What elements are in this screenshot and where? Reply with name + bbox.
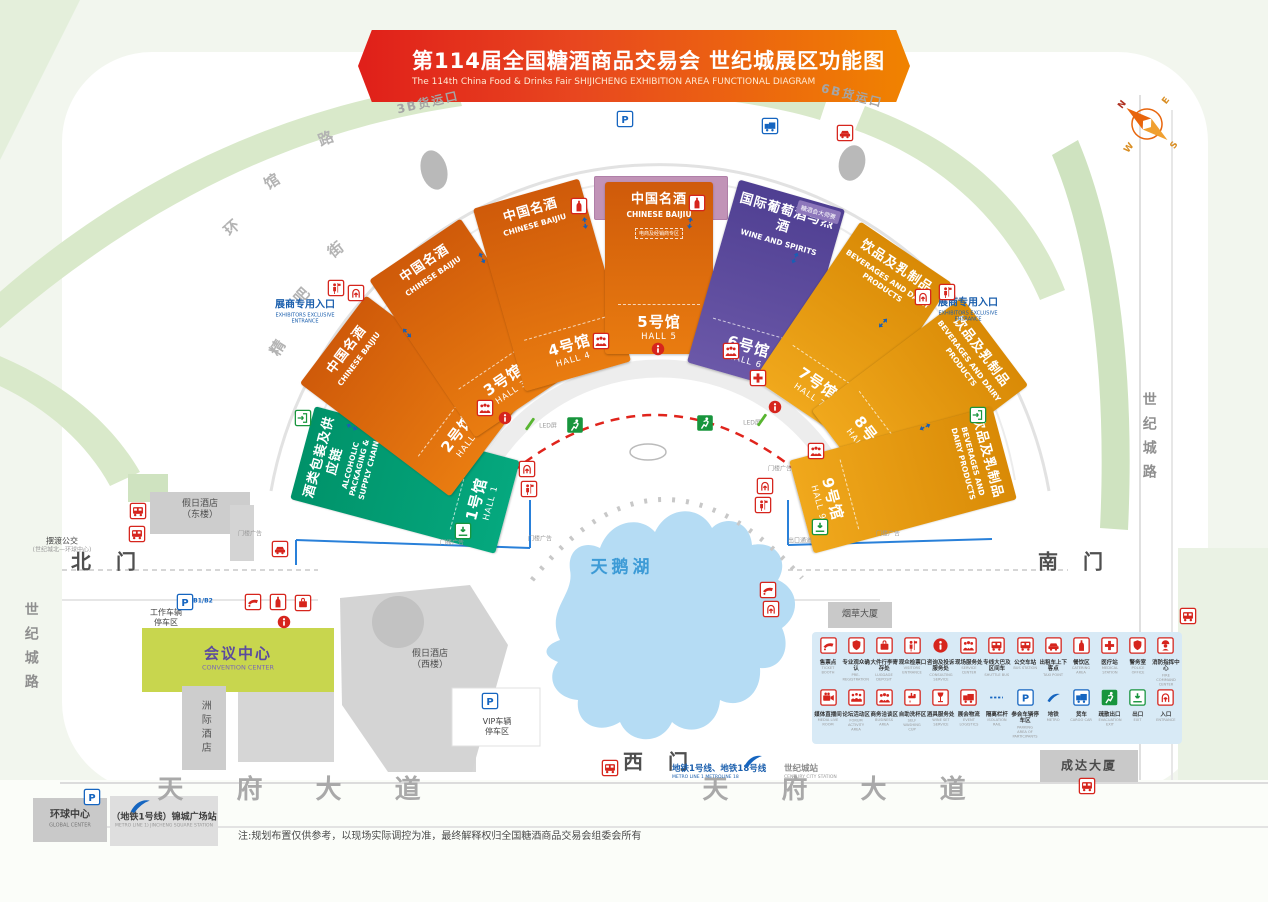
exit-passage: 出口通道 <box>788 537 812 545</box>
gate-ad-5: 门楼广告 <box>876 530 900 538</box>
gate-ad-3: 门楼广告 <box>528 535 552 543</box>
west-metro-lines-text: METRO LINE 1 METROLINE 18 <box>672 775 766 781</box>
shuttle-bus-icon <box>129 526 146 543</box>
vip-parking-text: VIP车辆 <box>483 717 512 727</box>
metro-icon <box>127 793 153 819</box>
staff-parking-levels: B1/B2 <box>193 597 213 605</box>
convention-center-text: CONVENTION CENTER <box>202 663 274 671</box>
runner-icon <box>1101 689 1118 710</box>
legend-item: P参会车辆停车区PARKING AREA OF PARTICIPANTS <box>1011 689 1039 740</box>
luggage-deposit-icon <box>295 595 312 612</box>
legend-item: 观众检票口VISITORS ENTRANCE <box>898 637 926 676</box>
legend-label-zh: 专线大巴及区间车 <box>983 660 1011 673</box>
legend-label-zh: 消防指挥中心 <box>1152 660 1180 673</box>
gate-ad-4: 门楼广告 <box>768 465 792 473</box>
century-city-station-text: CENTURY CITY STATION <box>784 775 837 781</box>
staff-parking: 工作车辆停车区 <box>150 608 182 628</box>
car-icon <box>1045 637 1062 658</box>
svg-text:P: P <box>1021 693 1028 704</box>
legend-item: 隔离栏杆ISOLATION RAIL <box>983 689 1011 728</box>
legend-label-zh: 出租车上下客点 <box>1039 660 1067 673</box>
cargo-truck-icon <box>762 118 779 135</box>
exhibitor-check-icon <box>939 284 956 301</box>
figure-icon <box>904 637 921 658</box>
staff-parking-icon: P <box>177 594 194 611</box>
svg-text:P: P <box>181 598 188 609</box>
swan-lake-text: 天鹅湖 <box>591 557 654 578</box>
legend-row-2: 媒体直播间MEDIA LIVE ROOM论坛活动区FORUM ACTIVITY … <box>814 689 1180 740</box>
exhibitor-entrance-left-text: ENTRANCE <box>275 318 335 324</box>
exitDown-icon <box>1129 689 1146 710</box>
legend-label-en: LUGGAGE DEPOSIT <box>872 673 897 682</box>
legend-item: 专业观众确认PRE-REGISTRATION <box>842 637 870 683</box>
century-city-station: 世纪城站CENTURY CITY STATION <box>784 764 837 780</box>
metro-icon <box>741 749 765 773</box>
tianfu-avenue-left: 天 府 大 道 <box>157 774 442 807</box>
disclaimer-note: 注:规划布置仅供参考，以现场实际调控为准，最终解释权归全国糖酒商品交易会组委会所… <box>238 831 641 844</box>
legend-label-en: TICKET BOOTH <box>815 667 840 676</box>
south-gate: 南 门 <box>1038 550 1112 575</box>
people-icon <box>960 637 977 658</box>
exhibitor-entrance-right: 展商专用入口EXHIBITORS EXCLUSIVEENTRANCE <box>938 298 998 323</box>
south-gate-text: 南 门 <box>1038 550 1112 575</box>
exit-icon <box>455 523 472 540</box>
metro-icon <box>1045 689 1062 710</box>
legend-label-en: CARGO CAR <box>1071 719 1093 723</box>
fire-icon <box>1157 637 1174 658</box>
legend-label-en: WINE SET SERVICE <box>928 719 953 728</box>
entrance-icon <box>519 461 536 478</box>
pre-registration-icon <box>270 594 287 611</box>
legend-label-en: METRO <box>1047 719 1060 723</box>
ticket-booth-icon <box>245 594 262 611</box>
legend-label-en: TAXI POINT <box>1043 673 1063 677</box>
entrance-icon <box>915 289 932 306</box>
exhibitor-check-icon <box>521 481 538 498</box>
service-center-icon <box>593 333 610 350</box>
svg-text:P: P <box>621 115 628 126</box>
p-icon: P <box>1017 689 1034 710</box>
legend-item: 警务室POLICE OFFICE <box>1124 637 1152 676</box>
legend-label-en: SERVICE CENTER <box>956 667 981 676</box>
vip-parking-icon: P <box>482 693 499 710</box>
gate-ad-3-text: 门楼广告 <box>528 535 552 543</box>
legend-label-en: POLICE OFFICE <box>1125 667 1150 676</box>
intercontinental-hotel: 洲际酒店 <box>198 700 211 756</box>
holiday-inn-west-text: 假日酒店 <box>412 649 448 660</box>
shuttle-bus-note: 摆渡公交(世纪城北—环球中心) <box>33 536 92 554</box>
legend-item: 咨询及投诉服务处CONSULTING SERVICE <box>927 637 955 683</box>
information-icon <box>651 342 666 357</box>
legend-label-zh: 专业观众确认 <box>842 660 870 673</box>
information-icon <box>498 411 513 426</box>
exit-icon <box>812 519 829 536</box>
tap-icon <box>904 689 921 710</box>
two-way-arrow-icon <box>577 215 594 232</box>
bus-station-icon <box>602 760 619 777</box>
legend-label-en: SHUTTLE BUS <box>985 673 1010 677</box>
map-legend: 售票点TICKET BOOTH专业观众确认PRE-REGISTRATION大件行… <box>812 632 1182 744</box>
parking-icon: P <box>617 111 634 128</box>
entrance-icon <box>757 478 774 495</box>
hall-5-subzone: 电商及经销商专区 <box>635 228 683 239</box>
tobacco-building: 烟草大厦 <box>842 609 878 620</box>
medical-station-icon <box>750 370 767 387</box>
century-city-road-left-text: 世纪城路 <box>21 602 39 698</box>
century-city-road-right-text: 世纪城路 <box>1139 392 1157 488</box>
gate-ad-1: 门楼广告 <box>238 530 262 538</box>
ticket-icon <box>820 637 837 658</box>
legend-item: 商务洽谈区BUSINESS AREA <box>870 689 898 728</box>
led-screen-left-text: LED屏 <box>539 422 557 430</box>
convention-center: 会议中心CONVENTION CENTER <box>202 645 274 672</box>
legend-label-en: CONSULTING SERVICE <box>928 673 953 682</box>
doorIn-icon <box>1157 689 1174 710</box>
bus-icon <box>988 637 1005 658</box>
taxi-icon <box>272 541 289 558</box>
bus-station-icon <box>1180 608 1197 625</box>
legend-label-en: MEDICAL STATION <box>1097 667 1122 676</box>
badge-icon <box>1129 637 1146 658</box>
legend-item: 餐饮区CATERING AREA <box>1067 637 1095 676</box>
service-center-icon <box>808 443 825 460</box>
gate-ad-1-text: 门楼广告 <box>238 530 262 538</box>
camera-icon <box>820 689 837 710</box>
rail-icon <box>988 689 1005 710</box>
legend-label-en: EVENT LOGISTICS <box>956 719 981 728</box>
tianfu-avenue-left-text: 天 府 大 道 <box>157 774 442 807</box>
legend-item: 媒体直播间MEDIA LIVE ROOM <box>814 689 842 728</box>
exit-icon <box>295 410 312 427</box>
svg-text:P: P <box>486 697 493 708</box>
shuttle-bus-note-text: (世纪城北—环球中心) <box>33 546 92 554</box>
legend-label-zh: 咨询及投诉服务处 <box>927 660 955 673</box>
disclaimer-note-text: 注:规划布置仅供参考，以现场实际调控为准，最终解释权归全国糖酒商品交易会组委会所… <box>238 831 641 844</box>
pre-registration-icon <box>689 195 706 212</box>
century-city-station-text: 世纪城站 <box>784 764 837 775</box>
legend-item: 入口ENTRANCE <box>1152 689 1180 723</box>
hall-5-number-zh: 5号馆 <box>618 311 700 332</box>
hall-5-category-zh: 中国名酒 <box>626 192 691 208</box>
entrance-icon <box>348 285 365 302</box>
truckR-icon <box>960 689 977 710</box>
legend-label-en: FORUM ACTIVITY AREA <box>844 719 869 732</box>
century-city-road-left: 世纪城路 <box>21 602 39 698</box>
entrance-icon <box>763 601 780 618</box>
legend-label-en: PRE-REGISTRATION <box>843 673 869 682</box>
exhibition-map: { "banner": { "title": "第114届全国糖酒商品交易会 世… <box>0 0 1268 902</box>
gate-ad-2-text: 门楼广告 <box>440 539 464 547</box>
exhibitor-entrance-left-text: EXHIBITORS EXCLUSIVE <box>275 312 335 318</box>
led-marker-icon <box>754 412 771 429</box>
global-center: 环球中心GLOBAL CENTER <box>49 810 91 829</box>
vip-parking: VIP车辆停车区 <box>483 717 512 737</box>
legend-item: 售票点TICKET BOOTH <box>814 637 842 676</box>
led-marker-icon <box>522 416 539 433</box>
holiday-inn-west-text: （西楼） <box>412 660 448 671</box>
gate-ad-4-text: 门楼广告 <box>768 465 792 473</box>
badge-icon <box>848 637 865 658</box>
taxi-icon <box>837 125 854 142</box>
parking-icon: P <box>84 789 101 806</box>
holiday-inn-east-text: （东楼） <box>182 510 218 521</box>
legend-item: 专线大巴及区间车SHUTTLE BUS <box>983 637 1011 678</box>
staff-parking-levels-text: B1/B2 <box>193 597 213 605</box>
legend-label-en: VISITORS ENTRANCE <box>900 667 925 676</box>
legend-label-zh: 参会车辆停车区 <box>1011 712 1039 725</box>
legend-item: 公交车站BUS STATION <box>1011 637 1039 671</box>
ticket-booth-icon <box>760 582 777 599</box>
chengda-building: 成达大厦 <box>1061 759 1117 774</box>
led-screen-left: LED屏 <box>539 422 557 430</box>
exhibitor-entrance-left: 展商专用入口EXHIBITORS EXCLUSIVEENTRANCE <box>275 300 335 325</box>
forum-icon <box>848 689 865 710</box>
exhibitor-entrance-right-text: ENTRANCE <box>938 316 998 322</box>
info-icon <box>932 637 949 658</box>
legend-item: 酒具服务处WINE SET SERVICE <box>927 689 955 728</box>
legend-item: 自助洗杯区SELF WASHING CUP <box>898 689 926 733</box>
legend-label-en: ENTRANCE <box>1156 719 1175 723</box>
legend-item: 论坛活动区FORUM ACTIVITY AREA <box>842 689 870 733</box>
legend-label-en: SELF WASHING CUP <box>900 719 925 732</box>
legend-item: 出租车上下客点TAXI POINT <box>1039 637 1067 678</box>
legend-label-en: PARKING AREA OF PARTICIPANTS <box>1012 726 1037 739</box>
legend-item: 地铁METRO <box>1039 689 1067 723</box>
chengda-building-text: 成达大厦 <box>1061 759 1117 774</box>
people-icon <box>876 689 893 710</box>
exit-passage-text: 出口通道 <box>788 537 812 545</box>
service-center-icon <box>477 400 494 417</box>
exhibitor-check-icon <box>328 280 345 297</box>
legend-label-en: EXIT <box>1134 719 1142 723</box>
bus-icon <box>1017 637 1034 658</box>
tobacco-building-text: 烟草大厦 <box>842 609 878 620</box>
information-icon <box>277 615 292 630</box>
legend-item: 医疗站MEDICAL STATION <box>1096 637 1124 676</box>
luggage-icon <box>876 637 893 658</box>
staff-parking-text: 停车区 <box>150 618 182 628</box>
evacuation-exit-icon <box>567 417 584 434</box>
legend-item: 出口EXIT <box>1124 689 1152 723</box>
gate-ad-5-text: 门楼广告 <box>876 530 900 538</box>
banner-title: 第114届全国糖酒商品交易会 世纪城展区功能图 <box>412 45 885 75</box>
legend-item: 展会物流EVENT LOGISTICS <box>955 689 983 728</box>
legend-label-en: FIRE COMMAND CENTER <box>1153 674 1178 687</box>
bottle-icon <box>1073 637 1090 658</box>
vip-parking-text: 停车区 <box>483 727 512 737</box>
shuttle-bus-icon <box>130 503 147 520</box>
cross-icon <box>1101 637 1118 658</box>
legend-item: 现场服务处SERVICE CENTER <box>955 637 983 676</box>
legend-label-en: ISOLATION RAIL <box>984 719 1009 728</box>
legend-label-en: CATERING AREA <box>1069 667 1094 676</box>
gate-ad-2: 门楼广告 <box>440 539 464 547</box>
exhibitor-check-icon <box>755 497 772 514</box>
legend-item: 大件行李寄存处LUGGAGE DEPOSIT <box>870 637 898 683</box>
global-center-text: 环球中心 <box>49 810 91 823</box>
holiday-inn-west: 假日酒店（西楼） <box>412 649 448 672</box>
legend-label-en: BUS STATION <box>1013 667 1037 671</box>
hall-5-category-en: CHINESE BAIJIU <box>626 210 691 220</box>
two-way-arrow-icon <box>682 215 699 232</box>
wine-icon <box>932 689 949 710</box>
legend-item: 消防指挥中心FIRE COMMAND CENTER <box>1152 637 1180 688</box>
exhibitor-entrance-right-text: EXHIBITORS EXCLUSIVE <box>938 310 998 316</box>
holiday-inn-east: 假日酒店（东楼） <box>182 499 218 522</box>
swan-lake: 天鹅湖 <box>591 557 654 578</box>
shuttle-bus-note-text: 摆渡公交 <box>33 536 92 546</box>
svg-text:P: P <box>88 793 95 804</box>
legend-label-zh: 大件行李寄存处 <box>870 660 898 673</box>
hall-5-number-en: HALL 5 <box>618 332 700 342</box>
legend-label-en: MEDIA LIVE ROOM <box>815 719 840 728</box>
intercontinental-hotel-text: 洲际酒店 <box>198 700 211 756</box>
truckB-icon <box>1073 689 1090 710</box>
banner-subtitle: The 114th China Food & Drinks Fair SHIJI… <box>412 77 885 87</box>
exit-icon <box>970 407 987 424</box>
jincheng-square-station-text: METRO LINE 1) JINCHENG SQUARE STATION <box>111 824 216 830</box>
global-center-text: GLOBAL CENTER <box>49 822 91 828</box>
evacuation-exit-icon <box>697 415 714 432</box>
legend-label-en: BUSINESS AREA <box>872 719 897 728</box>
exhibitor-entrance-left-text: 展商专用入口 <box>275 300 335 313</box>
legend-item: 疏散出口EVACUATION EXIT <box>1096 689 1124 728</box>
legend-row-1: 售票点TICKET BOOTH专业观众确认PRE-REGISTRATION大件行… <box>814 637 1180 688</box>
legend-label-en: EVACUATION EXIT <box>1097 719 1122 728</box>
legend-item: 货车CARGO CAR <box>1067 689 1095 723</box>
century-city-road-right: 世纪城路 <box>1139 392 1157 488</box>
bus-station-icon <box>1079 778 1096 795</box>
service-center-icon <box>723 343 740 360</box>
pre-registration-icon <box>571 198 588 215</box>
holiday-inn-east-text: 假日酒店 <box>182 499 218 510</box>
convention-center-text: 会议中心 <box>202 645 274 664</box>
